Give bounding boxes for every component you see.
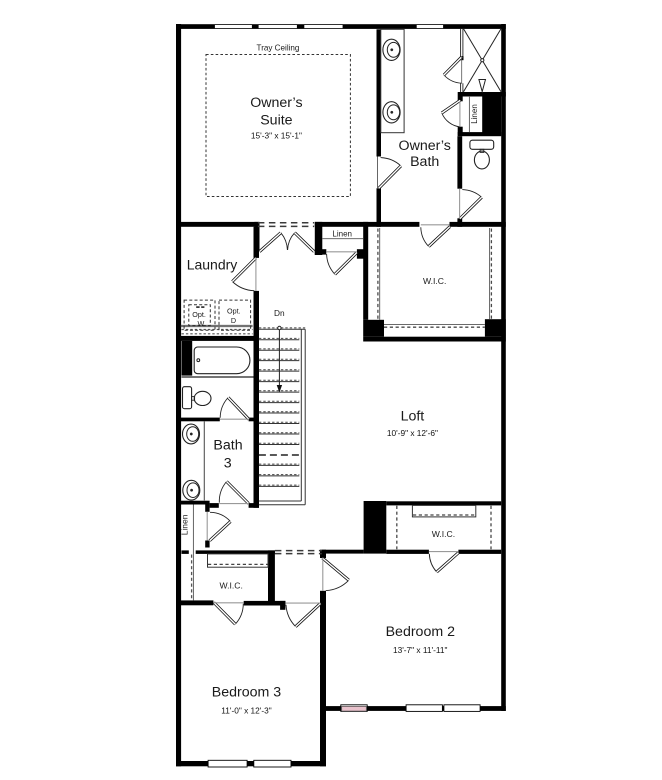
svg-text:13'-7" x 11'-11": 13'-7" x 11'-11" bbox=[393, 645, 447, 655]
svg-text:Dn: Dn bbox=[274, 308, 285, 318]
svg-text:W.I.C.: W.I.C. bbox=[432, 529, 455, 539]
svg-text:Owner’s: Owner’s bbox=[250, 95, 302, 111]
svg-text:Linen: Linen bbox=[332, 230, 352, 239]
svg-text:Tray Ceiling: Tray Ceiling bbox=[257, 43, 300, 52]
svg-text:D: D bbox=[231, 316, 236, 325]
svg-text:Bedroom 2: Bedroom 2 bbox=[386, 624, 456, 640]
svg-text:Suite: Suite bbox=[260, 112, 292, 128]
svg-text:Bedroom 3: Bedroom 3 bbox=[212, 684, 282, 700]
svg-text:15'-3" x 15'-1": 15'-3" x 15'-1" bbox=[251, 130, 302, 140]
svg-text:Opt.: Opt. bbox=[227, 307, 241, 316]
svg-text:W.I.C.: W.I.C. bbox=[423, 276, 446, 286]
svg-text:W: W bbox=[198, 319, 205, 328]
svg-text:Bath: Bath bbox=[213, 438, 242, 454]
svg-text:3: 3 bbox=[224, 455, 232, 471]
svg-text:Laundry: Laundry bbox=[187, 257, 238, 273]
svg-text:Bath: Bath bbox=[410, 154, 439, 170]
svg-text:Linen: Linen bbox=[470, 104, 479, 124]
svg-text:Loft: Loft bbox=[401, 408, 425, 424]
svg-text:Owner’s: Owner’s bbox=[399, 138, 451, 154]
svg-text:Opt.: Opt. bbox=[192, 310, 206, 319]
svg-text:Linen: Linen bbox=[179, 514, 189, 535]
svg-text:11'-0" x 12'-3": 11'-0" x 12'-3" bbox=[221, 705, 271, 715]
svg-text:10'-9" x 12'-6": 10'-9" x 12'-6" bbox=[387, 428, 438, 438]
svg-text:W.I.C.: W.I.C. bbox=[219, 581, 242, 591]
